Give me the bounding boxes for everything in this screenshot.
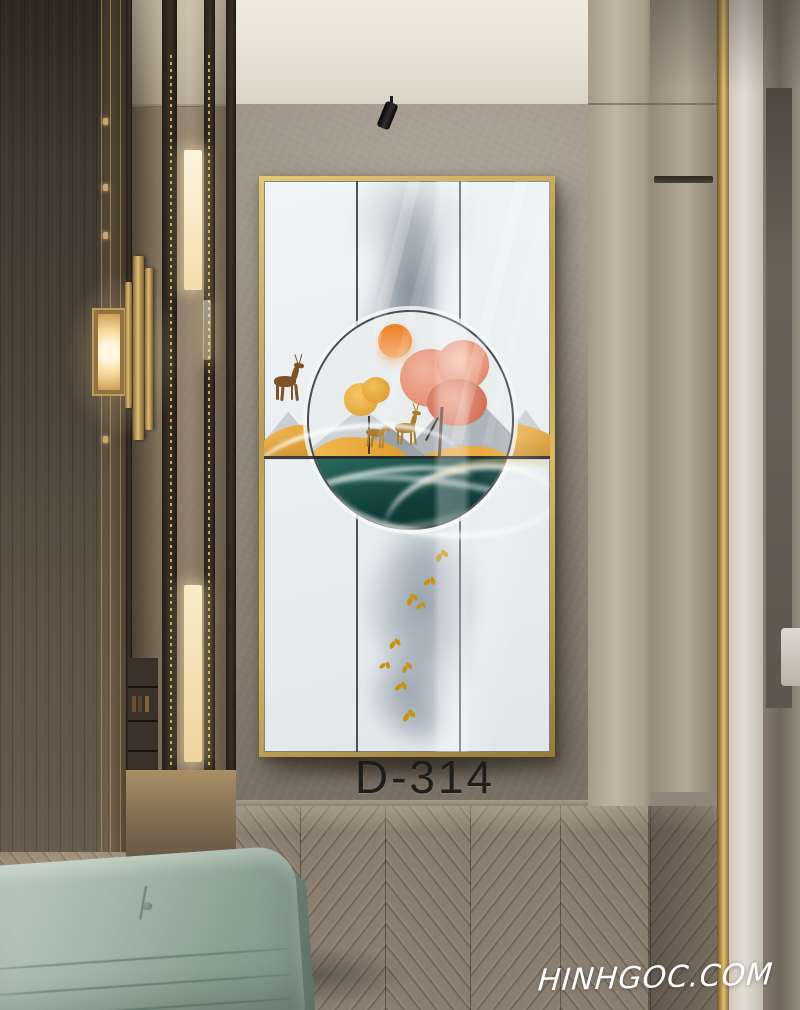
partition-ceiling-reflection — [126, 0, 236, 107]
soffit-shadow-line — [588, 103, 717, 105]
bench-cushion — [0, 845, 306, 1010]
watermark-text: HINHGOC.COM — [537, 957, 800, 999]
framed-art-print — [259, 176, 555, 757]
led-strip — [208, 55, 210, 765]
vanity-glimpse — [781, 628, 800, 686]
glass-connector — [103, 118, 108, 125]
right-wall-panel — [588, 0, 651, 806]
gold-wall-sconce — [88, 246, 160, 446]
glass-connector — [103, 232, 108, 239]
bench-seam — [0, 947, 291, 970]
door-handle-groove — [654, 176, 713, 183]
sconce-bar — [133, 256, 144, 440]
sconce-bar — [145, 268, 153, 430]
sconce-bar — [125, 282, 132, 408]
sconce-backplate — [92, 308, 126, 396]
hallway-photo: D-314 HINHGOC.COM — [0, 0, 800, 1010]
product-code-label: D-314 — [305, 750, 545, 804]
glass-reflection-soft — [264, 181, 550, 752]
bookshelf-behind-glass — [128, 658, 158, 770]
right-top-shadow — [650, 0, 800, 92]
glass-connector — [103, 184, 108, 191]
warm-light-reflection — [203, 300, 211, 360]
bench-seam — [0, 973, 293, 996]
partition-slat — [226, 0, 236, 792]
right-door-panel — [650, 0, 717, 792]
sage-bench — [0, 845, 306, 1010]
bench-tuft-button — [143, 902, 154, 911]
gold-trim-strip — [717, 0, 729, 1010]
white-pillar — [729, 0, 763, 1010]
doorway-recess — [766, 88, 792, 708]
bench-seam — [0, 998, 294, 1010]
art-canvas — [264, 181, 550, 752]
warm-light-panel — [184, 585, 202, 762]
